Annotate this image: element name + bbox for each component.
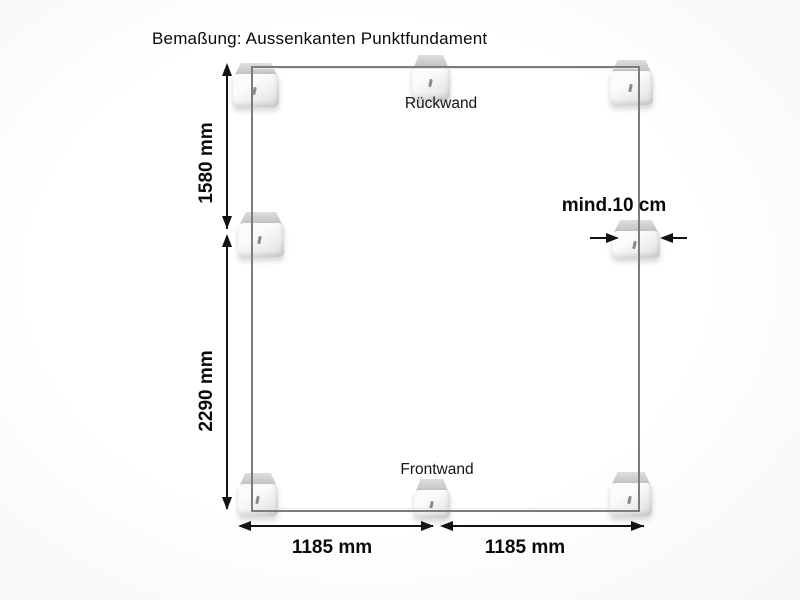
dim-arrow-right-icon	[606, 233, 619, 243]
dim-arrow-left-icon	[238, 521, 251, 531]
foundation-block-middle-right	[612, 220, 660, 258]
foundation-block-top-center	[412, 55, 450, 100]
dim-arrow-down-icon	[222, 497, 232, 510]
outline-profile-highlight	[253, 508, 638, 509]
dim-arrow-left-icon	[440, 521, 453, 531]
dim-value-side-upper: 1580 mm	[196, 122, 218, 203]
foundation-block-top-left	[233, 63, 279, 107]
outline-edge-right	[638, 66, 640, 512]
dim-arrow-down-icon	[222, 216, 232, 229]
back-wall-label: Rückwand	[405, 95, 477, 113]
block-front-face	[610, 71, 653, 105]
min-width-line-right	[672, 237, 687, 239]
dim-arrow-up-icon	[222, 234, 232, 247]
dim-value-side-lower: 2290 mm	[196, 350, 218, 431]
dim-arrow-right-icon	[421, 521, 434, 531]
front-wall-label: Frontwand	[400, 461, 473, 479]
outline-edge-left	[251, 66, 253, 512]
block-front-face	[238, 223, 284, 257]
min-width-line-left	[590, 237, 607, 239]
dim-line-side-lower	[226, 236, 228, 509]
dim-line-front-right	[442, 525, 644, 527]
diagram-title: Bemaßung: Aussenkanten Punktfundament	[152, 29, 487, 49]
outline-edge-bottom	[251, 510, 640, 512]
block-front-face	[233, 74, 279, 107]
block-front-face	[414, 490, 450, 518]
dim-arrow-left-icon	[660, 233, 673, 243]
dim-arrow-right-icon	[631, 521, 644, 531]
foundation-block-middle-left	[238, 212, 284, 257]
foundation-dimension-diagram: Bemaßung: Aussenkanten Punktfundament	[0, 0, 800, 600]
dim-line-front-left	[240, 525, 433, 527]
min-block-width-label: mind.10 cm	[562, 195, 667, 217]
dim-arrow-up-icon	[222, 63, 232, 76]
dim-line-side-upper	[226, 65, 228, 229]
foundation-block-bottom-center	[414, 479, 450, 518]
outline-profile-highlight	[253, 68, 638, 69]
block-front-face	[612, 231, 660, 258]
dim-value-front-right: 1185 mm	[485, 537, 565, 559]
dim-value-front-left: 1185 mm	[292, 537, 372, 559]
